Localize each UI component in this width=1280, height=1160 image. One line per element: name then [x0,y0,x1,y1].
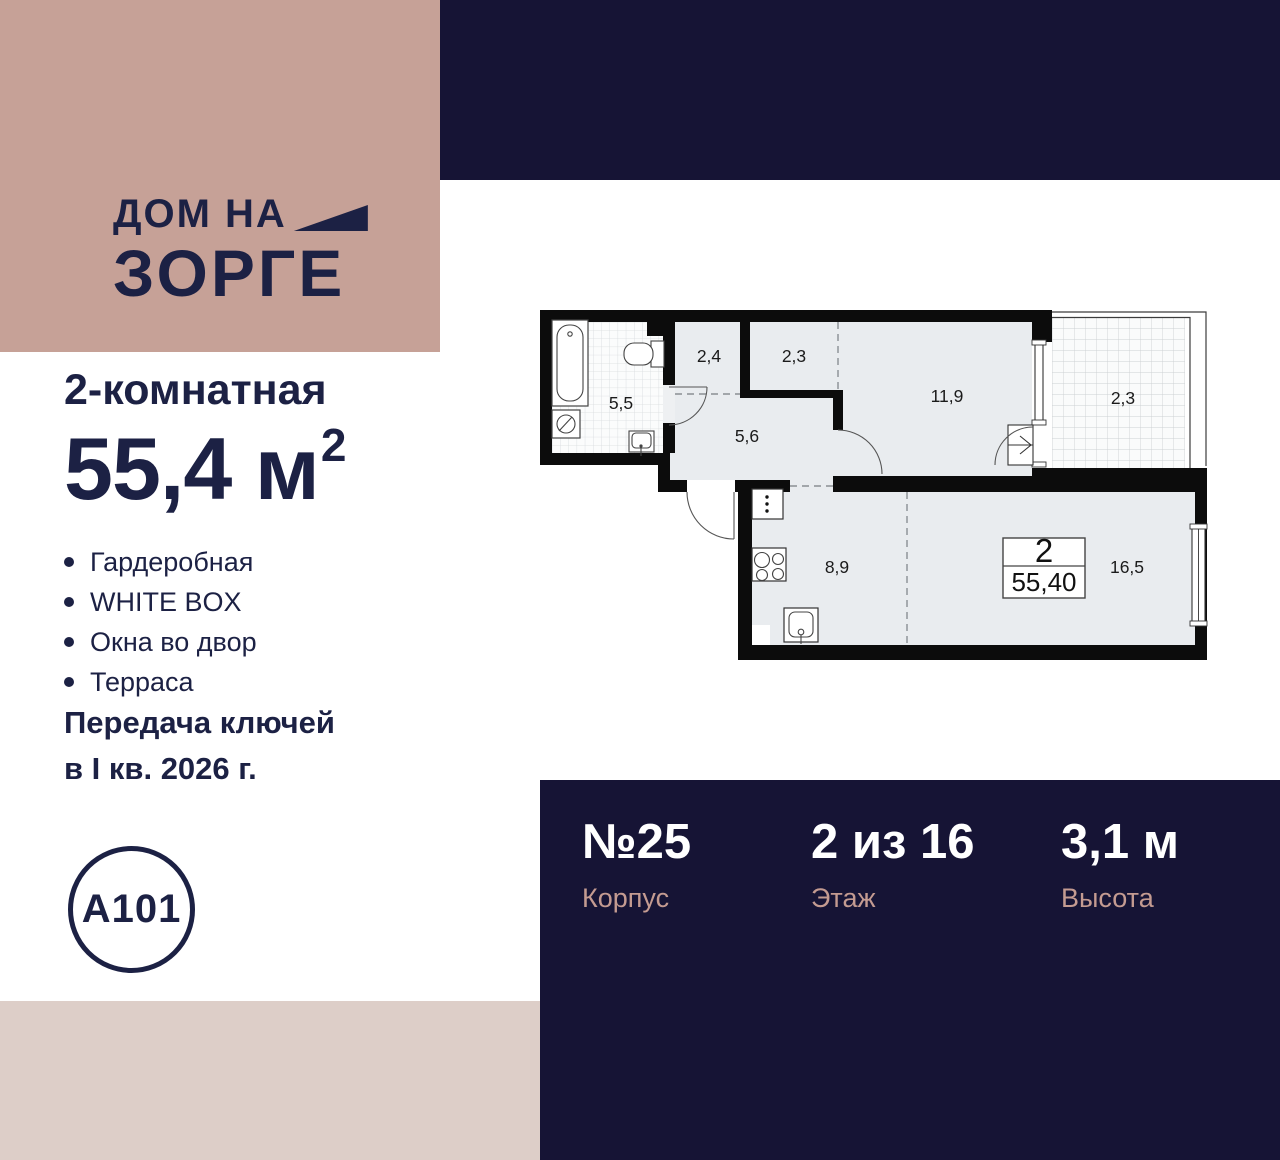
room-label-wardrobe: 2,4 [697,346,722,366]
stat-height: 3,1 м Высота [1061,818,1179,914]
room-label-closet: 2,3 [782,346,806,366]
feature-label: Терраса [90,667,194,698]
plan-rooms-count: 2 [1035,532,1053,569]
stat-height-value: 3,1 м [1061,818,1179,867]
kitchen-sink [784,608,818,644]
bullet-icon [64,677,74,687]
feature-item: Гардеробная [64,542,257,582]
fridge [752,489,783,519]
developer-logo-text: A101 [82,887,182,932]
stat-height-label: Высота [1061,883,1179,914]
room-label-bathroom: 5,5 [609,393,633,413]
feature-item: Терраса [64,662,257,702]
room-label-hall: 5,6 [735,426,759,446]
area-superscript: 2 [321,419,346,471]
handover-line2: в I кв. 2026 г. [64,746,335,792]
feature-item: Окна во двор [64,622,257,662]
brand-line1: ДОМ НА [113,194,287,234]
wall-niche [752,625,770,645]
stat-building-label: Корпус [582,883,691,914]
handover-note: Передача ключей в I кв. 2026 г. [64,700,335,792]
area-value: 55,4 м [64,419,319,518]
room-label-terrace: 2,3 [1111,388,1135,408]
brand-line2: ЗОРГЕ [113,240,368,306]
living-room-window [1190,524,1207,626]
bullet-icon [64,637,74,647]
apartment-area-title: 55,4 м2 [64,420,345,518]
plan-info-box: 2 55,40 [1003,532,1085,598]
stat-floor-value: 2 из 16 [811,818,974,867]
bottom-accent-strip [0,1001,540,1160]
floor-plan: 2 55,40 5,5 2,4 2,3 11,9 2,3 5,6 8,9 16,… [535,303,1219,667]
bathroom-sink [629,431,654,456]
stat-floor-label: Этаж [811,883,974,914]
bullet-icon [64,597,74,607]
room-label-living: 16,5 [1110,557,1144,577]
bathtub [552,320,588,406]
washing-machine [552,410,580,438]
toilet [624,341,664,367]
feature-label: WHITE BOX [90,587,242,618]
brand-logo: ДОМ НА ЗОРГЕ [113,194,368,306]
top-navy-block [440,0,1280,180]
stove [752,548,786,581]
developer-logo: A101 [68,846,195,973]
bathroom-door-gap [663,385,675,423]
room-label-kitchen: 8,9 [825,557,849,577]
stat-building: №25 Корпус [582,818,691,914]
entrance-door-gap [687,480,735,492]
handover-line1: Передача ключей [64,700,335,746]
listing-card: ДОМ НА ЗОРГЕ 2-комнатная 55,4 м2 Гардеро… [0,0,1280,1160]
feature-item: WHITE BOX [64,582,257,622]
bullet-icon [64,557,74,567]
feature-label: Окна во двор [90,627,257,658]
stat-building-value: №25 [582,818,691,867]
feature-label: Гардеробная [90,547,253,578]
feature-list: Гардеробная WHITE BOX Окна во двор Терра… [64,542,257,702]
plan-total-area: 55,40 [1011,567,1076,597]
stat-floor: 2 из 16 Этаж [811,818,974,914]
room-label-bedroom: 11,9 [931,386,964,406]
bedroom-terrace-window [1032,340,1046,467]
apartment-type-title: 2-комнатная [64,366,327,415]
brand-wedge-icon [294,205,368,231]
